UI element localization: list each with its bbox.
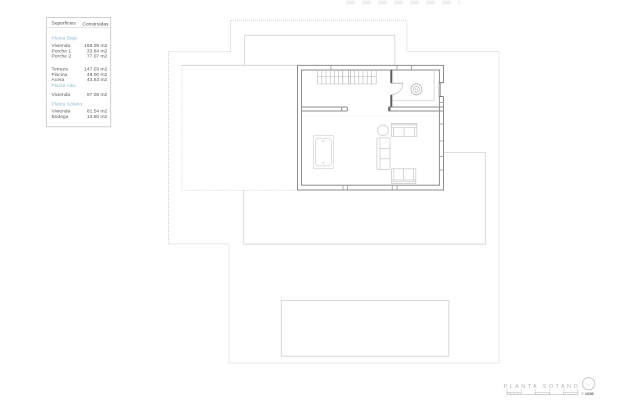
svg-text:Porche 2: Porche 2 xyxy=(52,54,72,60)
svg-text:77.07 m2: 77.07 m2 xyxy=(87,54,108,60)
svg-text:168.38 m2: 168.38 m2 xyxy=(84,43,107,49)
svg-text:Planta Alta:: Planta Alta: xyxy=(52,83,77,89)
svg-text:PLANTA SOTANO: PLANTA SOTANO xyxy=(504,384,581,390)
svg-text:Acera: Acera xyxy=(52,77,65,83)
svg-text:Vivienda: Vivienda xyxy=(52,109,71,115)
svg-text:Terraza: Terraza xyxy=(52,67,69,73)
svg-text:12.60 m2: 12.60 m2 xyxy=(87,114,108,120)
svg-text:Bodega: Bodega xyxy=(52,114,69,120)
svg-text:Superficies: Superficies xyxy=(52,21,77,27)
svg-text:48.00 m2: 48.00 m2 xyxy=(87,72,108,78)
svg-text:Planta Baja:: Planta Baja: xyxy=(52,35,78,41)
svg-text:147.03 m2: 147.03 m2 xyxy=(84,67,107,73)
svg-text:Planta Sótano:: Planta Sótano: xyxy=(52,101,84,107)
svg-text:97.08 m2: 97.08 m2 xyxy=(87,92,108,98)
svg-text:Construidas: Construidas xyxy=(82,21,109,27)
svg-text:Vivienda: Vivienda xyxy=(52,92,71,98)
svg-text:Piscina: Piscina xyxy=(52,72,68,78)
svg-text:33.84 m2: 33.84 m2 xyxy=(87,48,108,54)
svg-text:43.63 m2: 43.63 m2 xyxy=(87,77,108,83)
svg-text:1/100: 1/100 xyxy=(585,392,594,396)
svg-text:Porche 1: Porche 1 xyxy=(52,48,72,54)
svg-text:Vivienda: Vivienda xyxy=(52,43,71,49)
svg-text:81.54 m2: 81.54 m2 xyxy=(87,109,108,115)
